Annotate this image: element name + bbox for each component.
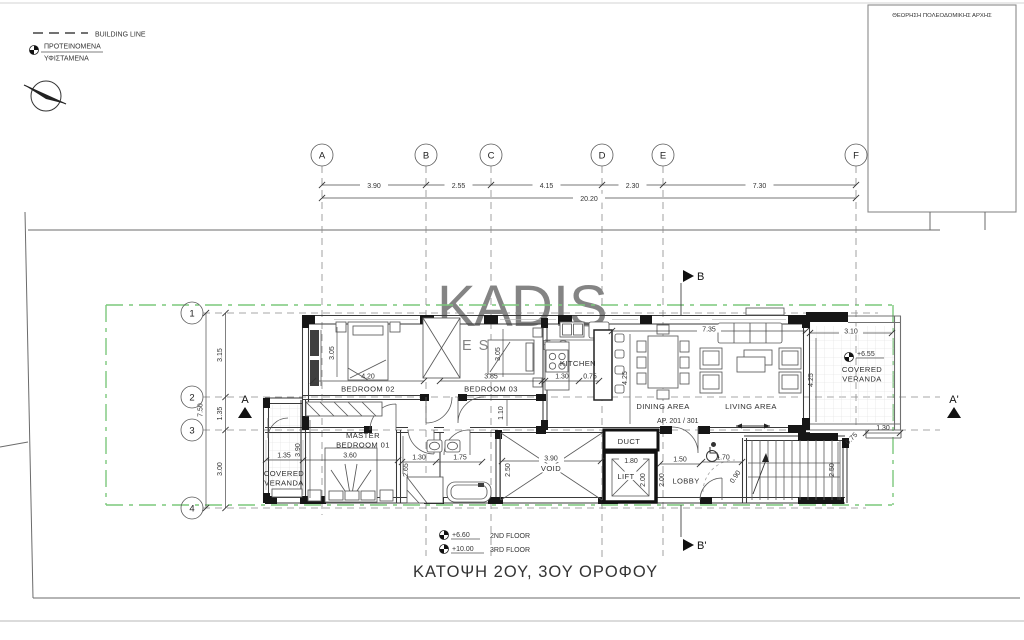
bedroom03-wardrobe (423, 318, 460, 378)
dim-kitchen-w: 1.30 (555, 374, 569, 381)
watermark-a: A (474, 274, 513, 339)
third-floor-level: +10.00 (452, 546, 474, 553)
grid-row-1: 1 (189, 309, 194, 320)
dim-void-h: 2.50 (505, 463, 512, 477)
section-b-prime-arrow-icon (683, 539, 694, 551)
dim-stair-w: 1.70 (716, 455, 730, 462)
section-b-arrow-icon (683, 270, 694, 282)
dim-bed03-w: 3.85 (484, 374, 498, 381)
legend-building-line-label: BUILDING LINE (95, 32, 146, 39)
dim-master-h: 3.90 (295, 443, 302, 457)
dim-veranda-r-step2: 0.75 (845, 432, 860, 447)
dim-row-1-2: 3.15 (217, 348, 224, 362)
dim-a-b: 3.90 (367, 183, 381, 190)
label-bedroom03: BEDROOM 03 (464, 385, 518, 394)
label-duct: DUCT (618, 437, 641, 446)
section-a-prime-arrow-icon (947, 407, 961, 418)
legend: BUILDING LINE ΠΡΟΤΕΙΝΟΜΕΝΑ ΥΦΙΣΤΑΜΕΝΑ (24, 32, 146, 112)
dim-d-e: 2.30 (626, 183, 640, 190)
label-bedroom02: BEDROOM 02 (341, 385, 395, 394)
grid-row-4: 4 (189, 504, 194, 515)
dim-e-f: 7.30 (753, 183, 767, 190)
kitchen-island (594, 330, 612, 400)
label-kitchen: KITCHEN (560, 359, 596, 368)
dim-row-3-4: 3.00 (217, 462, 224, 476)
label-dining: DINING AREA (636, 402, 690, 411)
grid-col-a: A (319, 151, 326, 162)
label-veranda-left-1: COVERED (264, 469, 304, 478)
legend-existing-label: ΥΦΙΣΤΑΜΕΝΑ (44, 56, 89, 63)
dim-c-d: 4.15 (540, 183, 554, 190)
dim-bath-h: 2.65 (403, 463, 410, 477)
dim-veranda-r-step: 1.30 (876, 425, 890, 432)
dim-living-w: 7.35 (702, 327, 716, 334)
drawing-canvas: K A DIS ESTATES BUILDING LINE ΠΡΟΤΕΙΝΟΜΕ… (0, 0, 1024, 640)
dim-lift-h: 2.00 (640, 473, 647, 487)
drawing-title: ΚΑΤΟΨΗ 2ΟΥ, 3ΟΥ ΟΡΟΦΟΥ (413, 563, 658, 581)
dim-bed02-w: 4.20 (361, 374, 375, 381)
dim-row-2-3: 1.35 (217, 407, 224, 421)
dim-bed02-h: 3.05 (329, 346, 336, 360)
approval-box: ΘΕΩΡΗΣΗ ΠΟΛΕΟΔΟΜΙΚΗΣ ΑΡΧΗΣ (868, 5, 1016, 212)
section-a-prime-label: A' (949, 394, 958, 406)
label-apartment-number: AP. 201 / 301 (657, 418, 699, 425)
dim-lobby-h: 2.00 (659, 473, 666, 487)
grid-col-d: D (599, 151, 606, 162)
section-a-label: A (241, 394, 249, 406)
label-master-2: BEDROOM 01 (336, 441, 390, 450)
label-veranda-left-2: VERANDA (264, 479, 304, 488)
label-lift: LIFT (617, 472, 634, 481)
legend-proposed-label: ΠΡΟΤΕΙΝΟΜΕΝΑ (44, 44, 101, 51)
dim-master-w: 3.60 (343, 453, 357, 460)
bedroom02-furniture (310, 322, 400, 386)
dim-veranda-r-h: 4.25 (808, 373, 815, 387)
section-a-arrow-icon (238, 407, 252, 418)
grid-col-b: B (423, 151, 429, 162)
dim-lobby-w: 1.50 (673, 457, 687, 464)
label-veranda-right-2: VERANDA (842, 375, 882, 384)
column-dimensions: 3.90 2.55 4.15 2.30 7.30 20.20 (319, 181, 859, 204)
level-symbol-icon (845, 353, 854, 362)
veranda-level-value: +6.55 (857, 351, 875, 358)
second-floor-level: +6.60 (452, 532, 470, 539)
section-b-prime-label: B' (697, 540, 706, 552)
dim-stair-arc: 0.90 (729, 469, 743, 484)
grid-col-e: E (660, 151, 666, 162)
level-symbol-icon (30, 46, 39, 55)
label-living: LIVING AREA (725, 402, 777, 411)
label-void: VOID (541, 464, 561, 473)
approval-box-title: ΘΕΩΡΗΣΗ ΠΟΛΕΟΔΟΜΙΚΗΣ ΑΡΧΗΣ (892, 13, 992, 19)
dim-void-w: 3.90 (544, 456, 558, 463)
grid-row-3: 3 (189, 426, 194, 437)
dim-col-total: 20.20 (580, 196, 598, 203)
dining-set (637, 325, 689, 399)
grid-column-bubbles: A B C D E F (311, 144, 867, 166)
dim-veranda-l-w: 1.35 (277, 453, 291, 460)
grid-row-2: 2 (189, 393, 194, 404)
dim-island-gap: 0.75 (583, 374, 597, 381)
grid-col-c: C (488, 151, 495, 162)
dim-stair-h: 2.50 (829, 463, 836, 477)
second-floor-label: 2ND FLOOR (490, 533, 530, 540)
label-veranda-right-1: COVERED (842, 365, 882, 374)
living-set (700, 308, 801, 393)
dim-lift-w: 1.80 (624, 458, 638, 465)
level-symbol-icon (440, 545, 449, 554)
dim-dining-h: 4.25 (622, 371, 629, 385)
section-b-label: B (697, 271, 704, 283)
dim-b-c: 2.55 (452, 183, 466, 190)
level-symbol-icon (440, 531, 449, 540)
third-floor-label: 3RD FLOOR (490, 547, 530, 554)
dim-veranda-r-w: 3.10 (844, 329, 858, 336)
dim-hall-w: 1.10 (498, 406, 505, 420)
row-dimensions: 3.15 1.35 3.00 7.50 (198, 310, 229, 511)
north-arrow-icon (24, 81, 66, 111)
label-lobby: LOBBY (672, 477, 699, 486)
floor-level-notes: +6.60 2ND FLOOR +10.00 3RD FLOOR (440, 531, 531, 555)
dim-bath1-w: 1.30 (412, 455, 426, 462)
grid-col-f: F (853, 151, 859, 162)
floor-plan-sheet: K A DIS ESTATES BUILDING LINE ΠΡΟΤΕΙΝΟΜΕ… (0, 0, 1024, 640)
dim-bath2-w: 1.75 (453, 455, 467, 462)
label-master-1: MASTER (346, 431, 380, 440)
veranda-left-bench (272, 489, 302, 497)
dim-bed03-h: 3.05 (495, 347, 502, 361)
dim-row-total: 7.50 (198, 403, 205, 417)
